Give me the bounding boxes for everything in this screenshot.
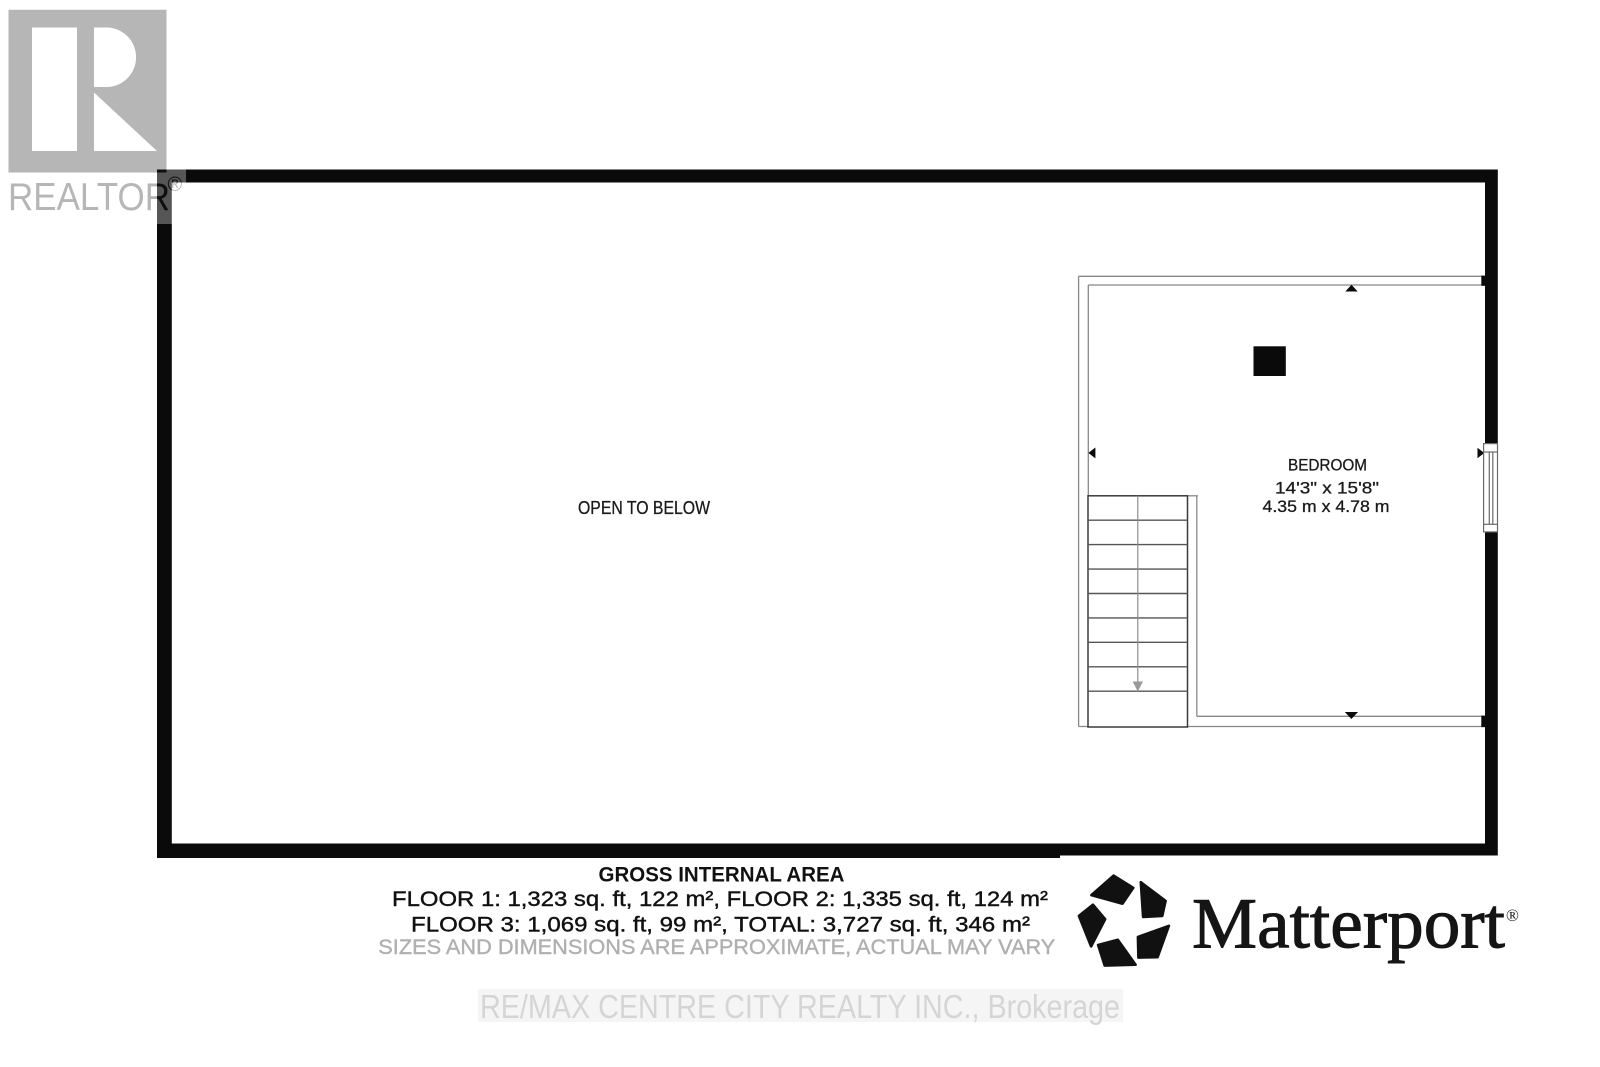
svg-text:RE/MAX CENTRE CITY REALTY INC.: RE/MAX CENTRE CITY REALTY INC., Brokerag… (480, 988, 1120, 1025)
svg-text:OPEN TO BELOW: OPEN TO BELOW (578, 498, 710, 518)
svg-text:®: ® (1506, 906, 1519, 925)
svg-text:FLOOR 3: 1,069 sq. ft, 99 m²,: FLOOR 3: 1,069 sq. ft, 99 m², TOTAL: 3,7… (411, 914, 1030, 937)
svg-text:SIZES AND DIMENSIONS ARE APPRO: SIZES AND DIMENSIONS ARE APPROXIMATE, AC… (378, 936, 1055, 959)
svg-text:®: ® (168, 174, 183, 196)
svg-text:BEDROOM: BEDROOM (1288, 457, 1367, 475)
svg-text:14'3" x 15'8": 14'3" x 15'8" (1275, 479, 1379, 498)
svg-text:REALTOR: REALTOR (8, 176, 170, 219)
svg-text:GROSS INTERNAL AREA: GROSS INTERNAL AREA (599, 864, 845, 887)
svg-text:Matterport: Matterport (1192, 885, 1505, 964)
svg-text:4.35 m x 4.78 m: 4.35 m x 4.78 m (1263, 497, 1390, 516)
svg-text:FLOOR 1: 1,323 sq. ft, 122 m²,: FLOOR 1: 1,323 sq. ft, 122 m², FLOOR 2: … (392, 888, 1048, 911)
